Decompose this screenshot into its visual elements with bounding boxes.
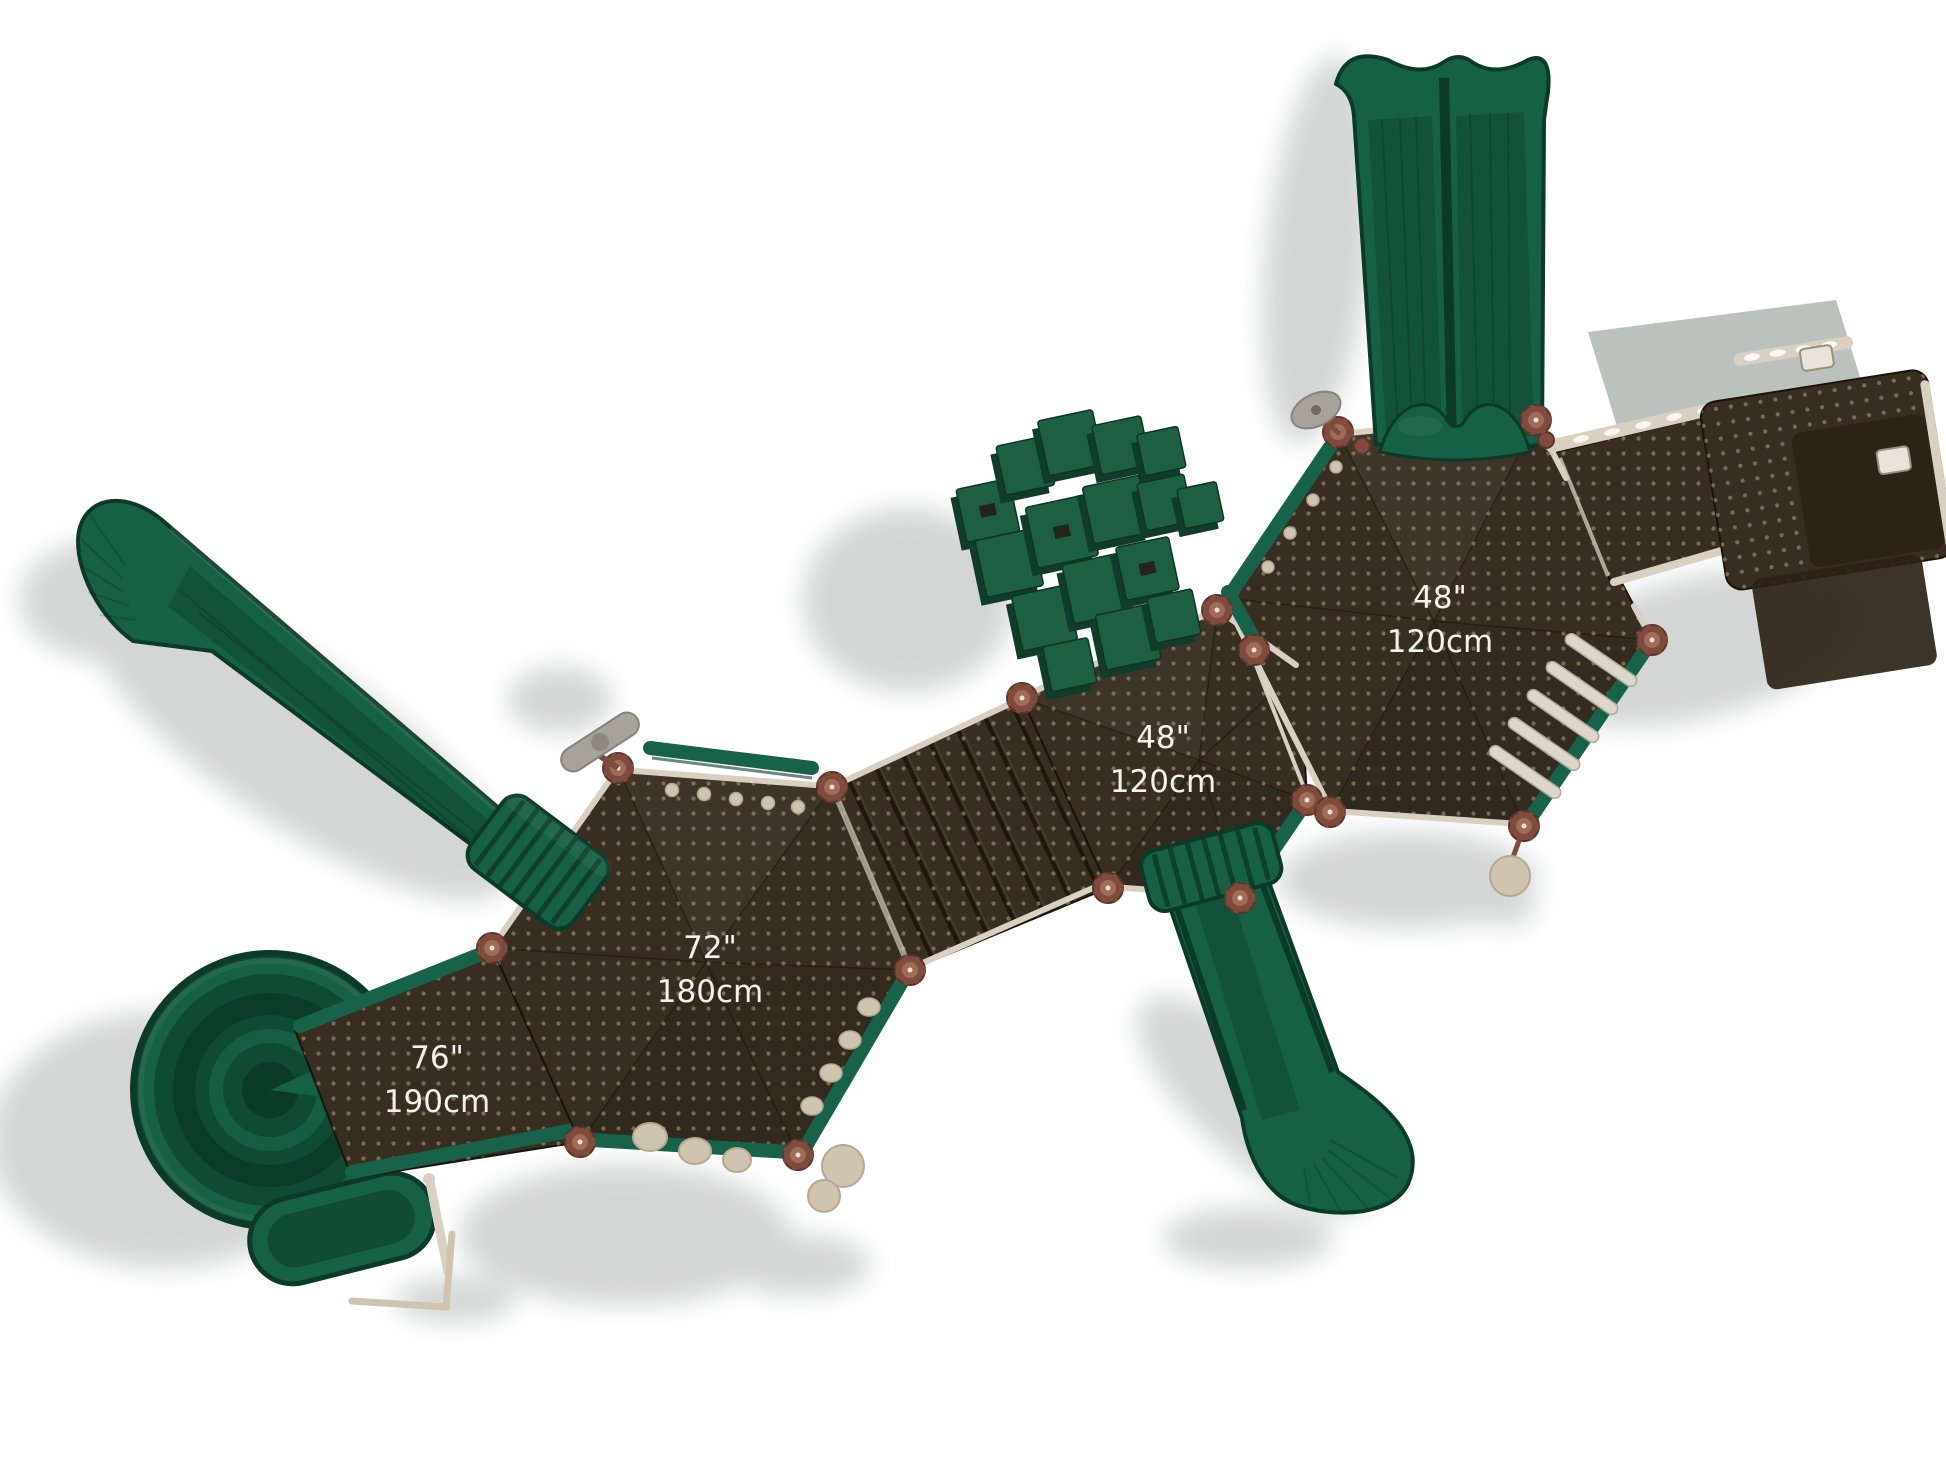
shadow-blob — [1163, 1208, 1333, 1268]
post-cap — [1239, 635, 1269, 665]
post-cap — [1315, 797, 1345, 827]
hood-highlight — [1398, 416, 1442, 436]
post-cap — [565, 1127, 595, 1157]
post-cap — [1202, 595, 1232, 625]
shadow-blob — [508, 667, 612, 733]
label-deck-48-middle-cm: 120cm — [1110, 764, 1216, 800]
label-deck-48-middle: 48" — [1136, 720, 1190, 756]
slide-bed-right — [1456, 112, 1534, 436]
shadow-blob — [1475, 899, 1535, 925]
label-deck-72: 72" — [683, 930, 737, 966]
mounting-bracket — [1799, 345, 1834, 372]
pod-stepper — [633, 1123, 667, 1151]
post-cap — [1509, 811, 1539, 841]
label-ramp-76-cm: 190cm — [384, 1084, 490, 1120]
post-cap — [1225, 883, 1255, 913]
shadow-blob — [730, 1235, 870, 1295]
pod-stepper — [723, 1148, 751, 1172]
label-ramp-76: 76" — [410, 1040, 464, 1076]
square-deck-panel — [1790, 413, 1946, 569]
label-deck-48-right-cm: 120cm — [1387, 624, 1493, 660]
shadow-blob — [460, 1165, 790, 1305]
post-cap — [783, 1140, 813, 1170]
label-deck-48-right: 48" — [1413, 580, 1467, 616]
pod-stepper — [679, 1138, 711, 1164]
post-cap — [477, 933, 507, 963]
pole-cap — [423, 1173, 435, 1185]
mounting-bracket — [1876, 446, 1911, 475]
post-cap — [1007, 683, 1037, 713]
post-cap — [895, 955, 925, 985]
post-cap — [1521, 405, 1551, 435]
playground-top-view-render: 48" 120cm 48" 120cm 72" 180cm 76" 190cm — [0, 0, 1946, 1460]
label-deck-72-cm: 180cm — [657, 974, 763, 1010]
shadow-blob — [395, 1278, 515, 1322]
post-cap — [817, 772, 847, 802]
ball-climber — [808, 1180, 840, 1212]
post-cap — [1093, 873, 1123, 903]
post-cap — [1637, 625, 1667, 655]
render-canvas: 48" 120cm 48" 120cm 72" 180cm 76" 190cm — [0, 0, 1946, 1460]
hanging-ball — [1490, 856, 1530, 896]
slide-clamp — [1354, 438, 1370, 454]
